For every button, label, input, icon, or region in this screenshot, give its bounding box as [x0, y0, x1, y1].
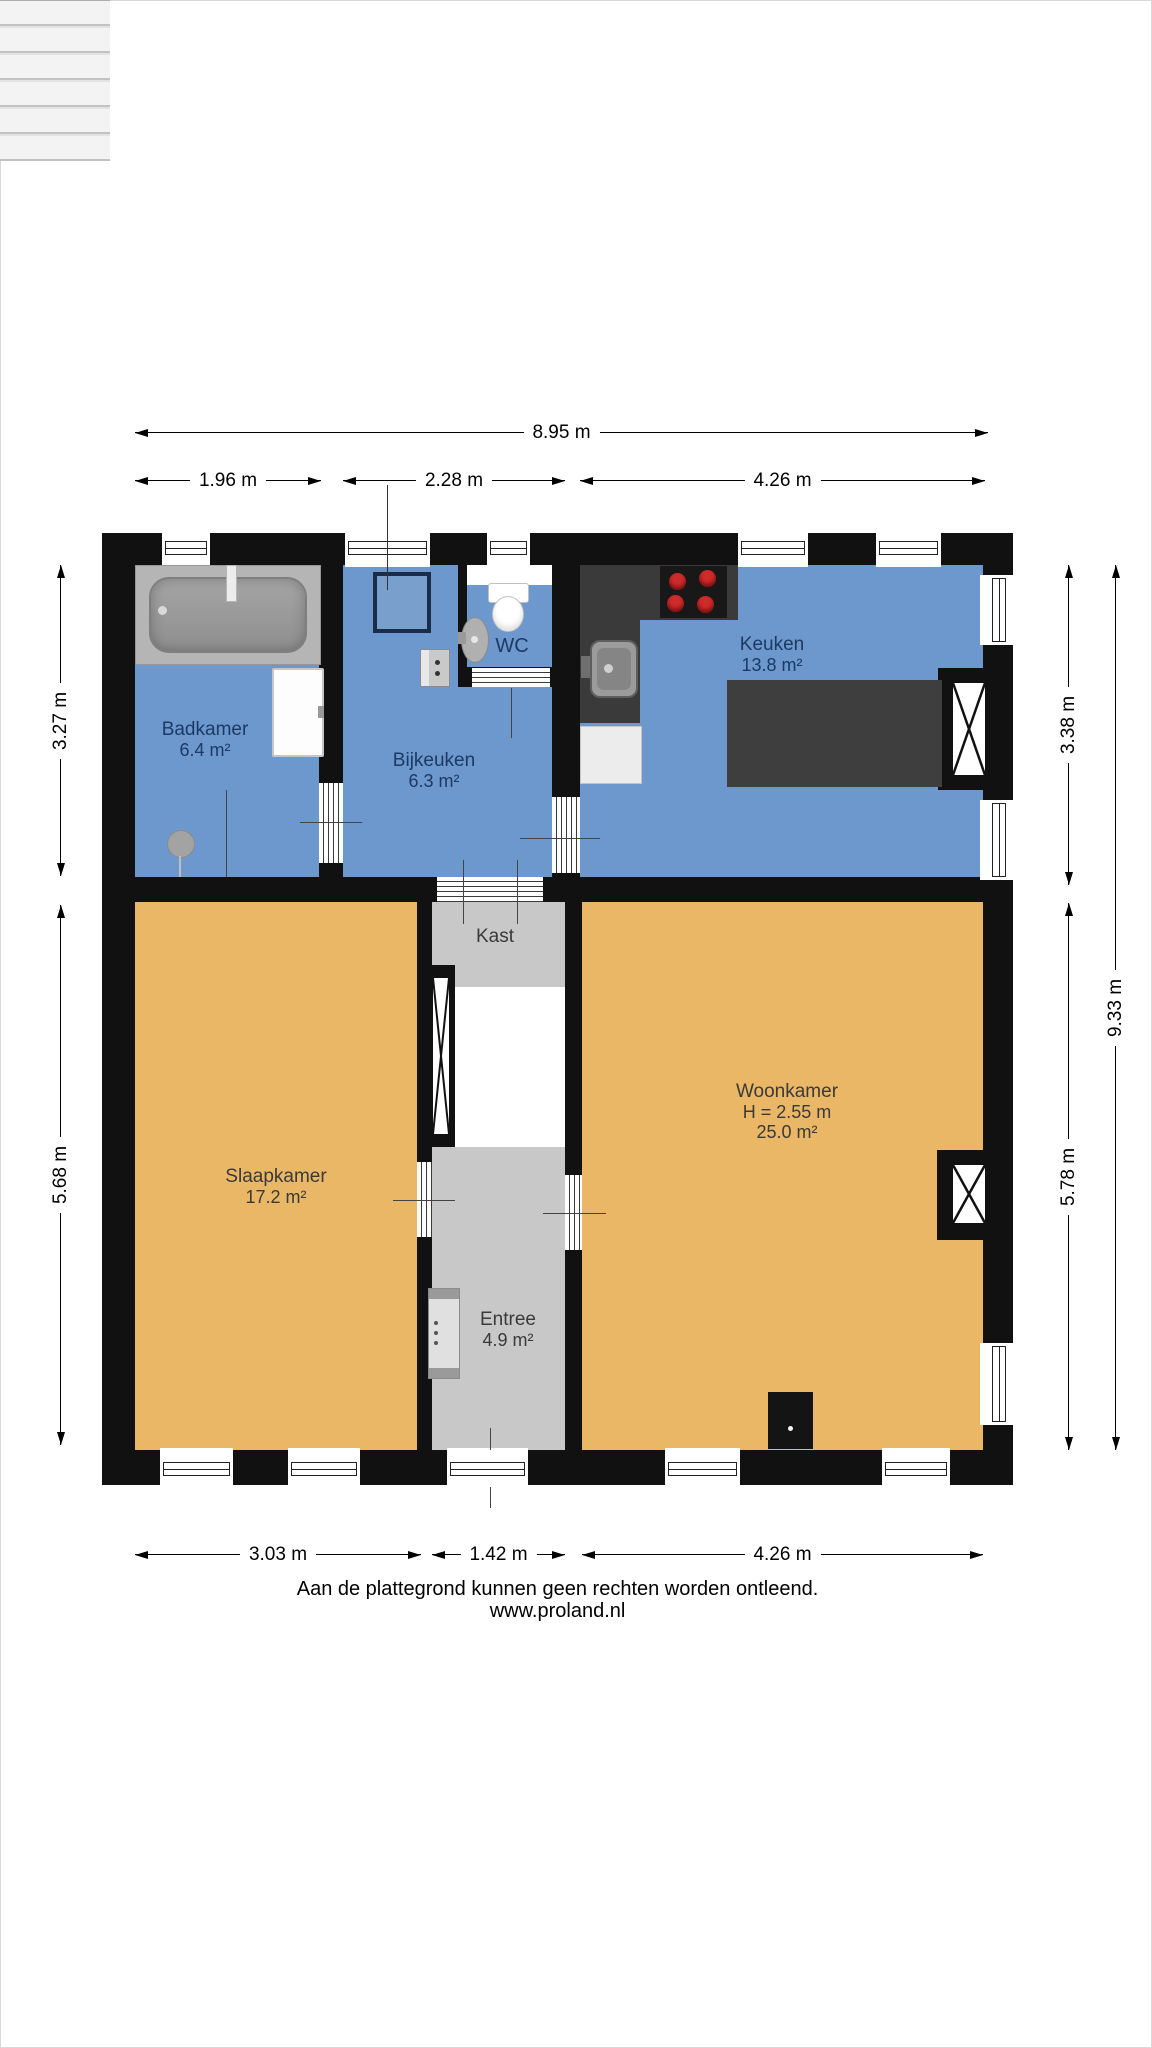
- room-name: Entree: [480, 1310, 536, 1330]
- door-wc: [472, 668, 550, 687]
- room-label-bijkeuken: Bijkeuken 6.3 m²: [393, 751, 475, 791]
- window-keuken-top-1: [738, 528, 808, 567]
- window-badkamer-top: [162, 528, 210, 567]
- room-area: 4.9 m²: [480, 1330, 536, 1350]
- sink-drain: [604, 664, 613, 673]
- dimension-label: 3.27 m: [50, 682, 72, 758]
- wood-stove: [768, 1392, 813, 1449]
- x-brace-icon: [433, 978, 449, 1134]
- boiler-knob: [435, 660, 440, 665]
- dimension-label: 1.42 m: [460, 1544, 536, 1566]
- dimension-bottom-2: 1.42 m: [432, 1554, 565, 1555]
- boiler-knob: [435, 671, 440, 676]
- room-ceiling-height: H = 2.55 m: [736, 1102, 838, 1122]
- window-slaapkamer-2: [288, 1448, 360, 1489]
- dimension-top-2: 2.28 m: [343, 480, 565, 481]
- dimension-left-2: 5.68 m: [60, 905, 61, 1445]
- window-wc-top: [487, 528, 530, 567]
- dimension-label: 5.78 m: [1058, 1138, 1080, 1214]
- dimension-top-3: 4.26 m: [580, 480, 985, 481]
- dishwasher: [580, 726, 642, 784]
- door-tick-kast-2: [517, 860, 518, 924]
- room-area: 6.3 m²: [393, 771, 475, 791]
- kitchen-island: [727, 680, 942, 787]
- room-area: 25.0 m²: [736, 1122, 838, 1142]
- washbasin-tap: [458, 632, 466, 644]
- wall-mid-right: [543, 877, 1013, 902]
- footer-website: www.proland.nl: [0, 1600, 1115, 1622]
- door-swing-line-badkamer: [226, 790, 227, 877]
- front-door: [447, 1448, 528, 1489]
- sink-basin: [597, 648, 631, 690]
- meter-cabinet-rail: [429, 1289, 459, 1299]
- door-tick-woonkamer: [543, 1213, 606, 1214]
- sink-faucet: [581, 656, 590, 678]
- door-tick-slaapkamer: [393, 1200, 455, 1201]
- wall-bottom: [102, 1450, 1013, 1485]
- dimension-bottom-3: 4.26 m: [582, 1554, 983, 1555]
- x-brace-icon: [953, 1165, 985, 1223]
- leader-line-washer: [387, 485, 388, 590]
- wall-hal-woonkamer-upper: [565, 902, 582, 1175]
- room-area: 13.8 m²: [740, 655, 804, 675]
- burner: [667, 595, 684, 612]
- room-name: Woonkamer: [736, 1082, 838, 1102]
- door-badkamer-bijkeuken: [319, 783, 343, 863]
- door-tick-kast-1: [463, 860, 464, 924]
- meter-cabinet-rail: [429, 1368, 459, 1378]
- floor-plan-page: Badkamer 6.4 m² Bijkeuken 6.3 m² WC Keuk…: [0, 0, 1152, 2048]
- dimension-label: 3.38 m: [1058, 687, 1080, 763]
- stove-knob: [788, 1426, 793, 1431]
- door-bijkeuken-kast: [437, 877, 543, 902]
- shower-panel-handle: [318, 706, 324, 718]
- wall-hal-woonkamer-lower: [565, 1250, 582, 1450]
- window-keuken-right-1: [980, 575, 1017, 645]
- room-name: Slaapkamer: [225, 1167, 326, 1187]
- wall-left: [102, 533, 135, 1485]
- door-tick-badkamer: [300, 822, 362, 823]
- door-tick-wc: [511, 688, 512, 738]
- bathtub-faucet: [226, 565, 237, 602]
- fuse-dot: [434, 1331, 438, 1335]
- meter-cabinet: [428, 1288, 460, 1379]
- door-tick-bijkeuken-keuken: [520, 838, 600, 839]
- bathtub: [135, 565, 321, 665]
- room-label-wc: WC: [495, 636, 528, 656]
- wall-wc-keuken: [552, 533, 580, 797]
- cooktop: [660, 566, 727, 618]
- room-area: 17.2 m²: [225, 1187, 326, 1207]
- dimension-label: 5.68 m: [50, 1137, 72, 1213]
- room-floor-woonkamer: [582, 902, 983, 1450]
- dimension-label: 3.03 m: [240, 1544, 316, 1566]
- room-label-kast: Kast: [476, 927, 514, 947]
- boiler-face: [421, 650, 429, 686]
- shower-panel: [272, 668, 324, 757]
- dimension-label: 1.96 m: [190, 470, 266, 492]
- staircase: [0, 0, 110, 161]
- room-name: Badkamer: [162, 720, 249, 740]
- toilet-bowl: [492, 596, 524, 632]
- room-label-badkamer: Badkamer 6.4 m²: [162, 720, 249, 760]
- room-name: WC: [495, 636, 528, 656]
- x-brace-icon: [953, 683, 985, 775]
- fuse-dot: [434, 1341, 438, 1345]
- bathtub-drain: [158, 606, 167, 615]
- burner: [697, 596, 714, 613]
- dimension-top-total: 8.95 m: [135, 432, 988, 433]
- dimension-label: 2.28 m: [416, 470, 492, 492]
- kitchen-sink: [590, 640, 638, 698]
- room-name: Kast: [476, 927, 514, 947]
- room-label-entree: Entree 4.9 m²: [480, 1310, 536, 1350]
- chimney-keuken: [948, 678, 990, 780]
- footer-disclaimer: Aan de plattegrond kunnen geen rechten w…: [0, 1578, 1115, 1600]
- window-woonkamer-2: [882, 1448, 950, 1489]
- room-name: Keuken: [740, 635, 804, 655]
- dimension-right-total: 9.33 m: [1115, 565, 1116, 1450]
- fuse-dot: [434, 1321, 438, 1325]
- window-woonkamer-1: [665, 1448, 740, 1489]
- door-tick-frontdoor-bottom: [490, 1487, 491, 1508]
- wall-mid-left: [102, 877, 437, 902]
- washing-machine: [373, 572, 431, 633]
- dimension-label: 9.33 m: [1105, 969, 1127, 1045]
- window-slaapkamer-1: [160, 1448, 233, 1489]
- dimension-top-1: 1.96 m: [135, 480, 321, 481]
- room-name: Bijkeuken: [393, 751, 475, 771]
- room-label-keuken: Keuken 13.8 m²: [740, 635, 804, 675]
- wall-bijkeuken-keuken-stub: [552, 873, 580, 902]
- footer: Aan de plattegrond kunnen geen rechten w…: [0, 1578, 1115, 1622]
- dimension-label: 4.26 m: [744, 470, 820, 492]
- chimney-woonkamer: [948, 1160, 990, 1228]
- chimney-hal: [430, 975, 452, 1137]
- room-label-woonkamer: Woonkamer H = 2.55 m 25.0 m²: [736, 1082, 838, 1142]
- room-label-slaapkamer: Slaapkamer 17.2 m²: [225, 1167, 326, 1207]
- dimension-right-2: 5.78 m: [1068, 903, 1069, 1450]
- window-keuken-right-2: [980, 800, 1017, 880]
- burner: [699, 570, 716, 587]
- door-bijkeuken-keuken: [552, 797, 580, 873]
- dimension-label: 4.26 m: [744, 1544, 820, 1566]
- burner: [669, 573, 686, 590]
- dimension-right-1: 3.38 m: [1068, 565, 1069, 885]
- wall-badkamer-bijkeuken-lower: [319, 863, 343, 877]
- drain-hose-line: [179, 856, 181, 877]
- room-area: 6.4 m²: [162, 740, 249, 760]
- window-keuken-top-2: [876, 528, 941, 567]
- dimension-label: 8.95 m: [523, 422, 599, 444]
- dimension-left-1: 3.27 m: [60, 565, 61, 876]
- floor-drain: [167, 830, 195, 858]
- washbasin-drain: [471, 636, 478, 643]
- wc-sill: [467, 565, 552, 585]
- boiler-unit: [420, 649, 450, 687]
- dimension-bottom-1: 3.03 m: [135, 1554, 421, 1555]
- window-woonkamer-right: [980, 1343, 1017, 1425]
- door-tick-frontdoor-top: [490, 1428, 491, 1450]
